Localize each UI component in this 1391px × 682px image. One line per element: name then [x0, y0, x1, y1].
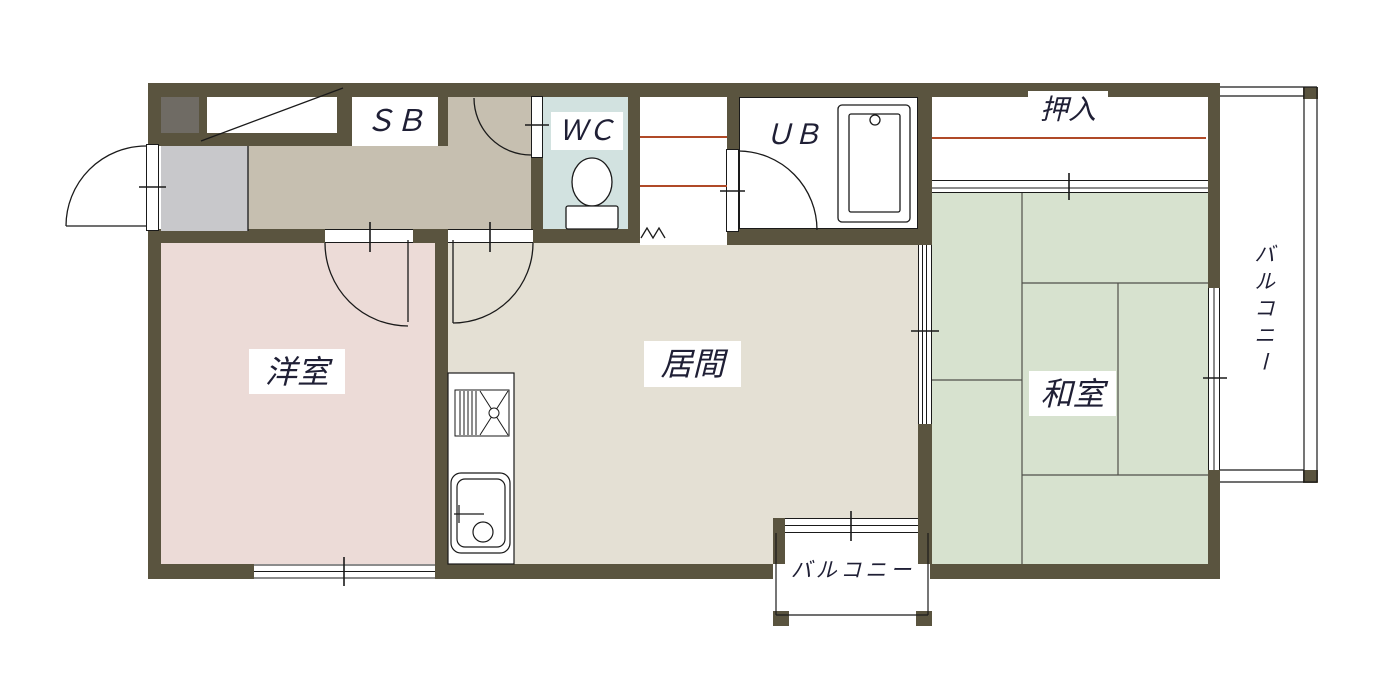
wall-wc-left	[531, 158, 543, 229]
unit-bath-label: ＵＢ	[760, 116, 826, 154]
closet-label: 押入	[1028, 91, 1108, 129]
japanese-room-label: 和室	[1029, 371, 1116, 416]
wall-ub-south	[727, 229, 932, 245]
western-door-opening	[325, 229, 413, 243]
ub-door-leaf	[726, 149, 739, 232]
entrance-door-swing	[66, 146, 146, 226]
living-room-label: 居間	[644, 341, 741, 387]
meter-box	[161, 97, 199, 133]
right-balcony-label: バルコニー	[1243, 208, 1283, 413]
wall-bottom-east	[930, 564, 1220, 579]
laundry-nook-floor	[640, 97, 727, 245]
living-room-floor	[448, 243, 918, 564]
balcony-stub-left	[773, 518, 785, 564]
bottom-balcony-label: バルコニー	[787, 556, 919, 585]
western-room-window	[254, 564, 435, 579]
living-door-opening	[448, 229, 533, 243]
shoe-box-label: ＳＢ	[352, 97, 438, 146]
wall-ub-right	[918, 97, 932, 229]
wall-room-divider	[435, 229, 448, 564]
living-tatami-sliding-door	[918, 245, 932, 424]
wc-door-leaf	[531, 96, 543, 158]
storage-box	[207, 97, 337, 133]
wall-bottom-west	[148, 564, 773, 579]
wall-hall-south-1	[148, 229, 325, 243]
wall-wc-south	[531, 229, 640, 243]
western-room-floor	[161, 243, 435, 564]
wall-left-lower	[148, 231, 161, 579]
floor-plan: ＳＢ ＷＣ ＵＢ 押入 洋室 居間 和室 バルコニー バルコニー	[0, 0, 1391, 682]
right-balcony-corner-bottom	[1303, 470, 1318, 483]
closet-sliding-door	[932, 180, 1208, 193]
balcony-stub-right	[918, 518, 930, 564]
wall-ub-left-stub	[727, 97, 739, 150]
entrance-floor	[161, 146, 248, 231]
wall-left-upper	[148, 83, 161, 145]
balcony-corner-br	[916, 611, 932, 626]
right-balcony-corner-top	[1303, 87, 1318, 99]
tatami-balcony-window	[1208, 288, 1220, 470]
toilet-label: ＷＣ	[551, 112, 623, 150]
wall-wc-right	[628, 97, 640, 229]
balcony-window	[785, 518, 918, 533]
entrance-door-leaf	[146, 144, 159, 231]
balcony-corner-bl	[773, 611, 789, 626]
western-room-label: 洋室	[249, 349, 345, 394]
